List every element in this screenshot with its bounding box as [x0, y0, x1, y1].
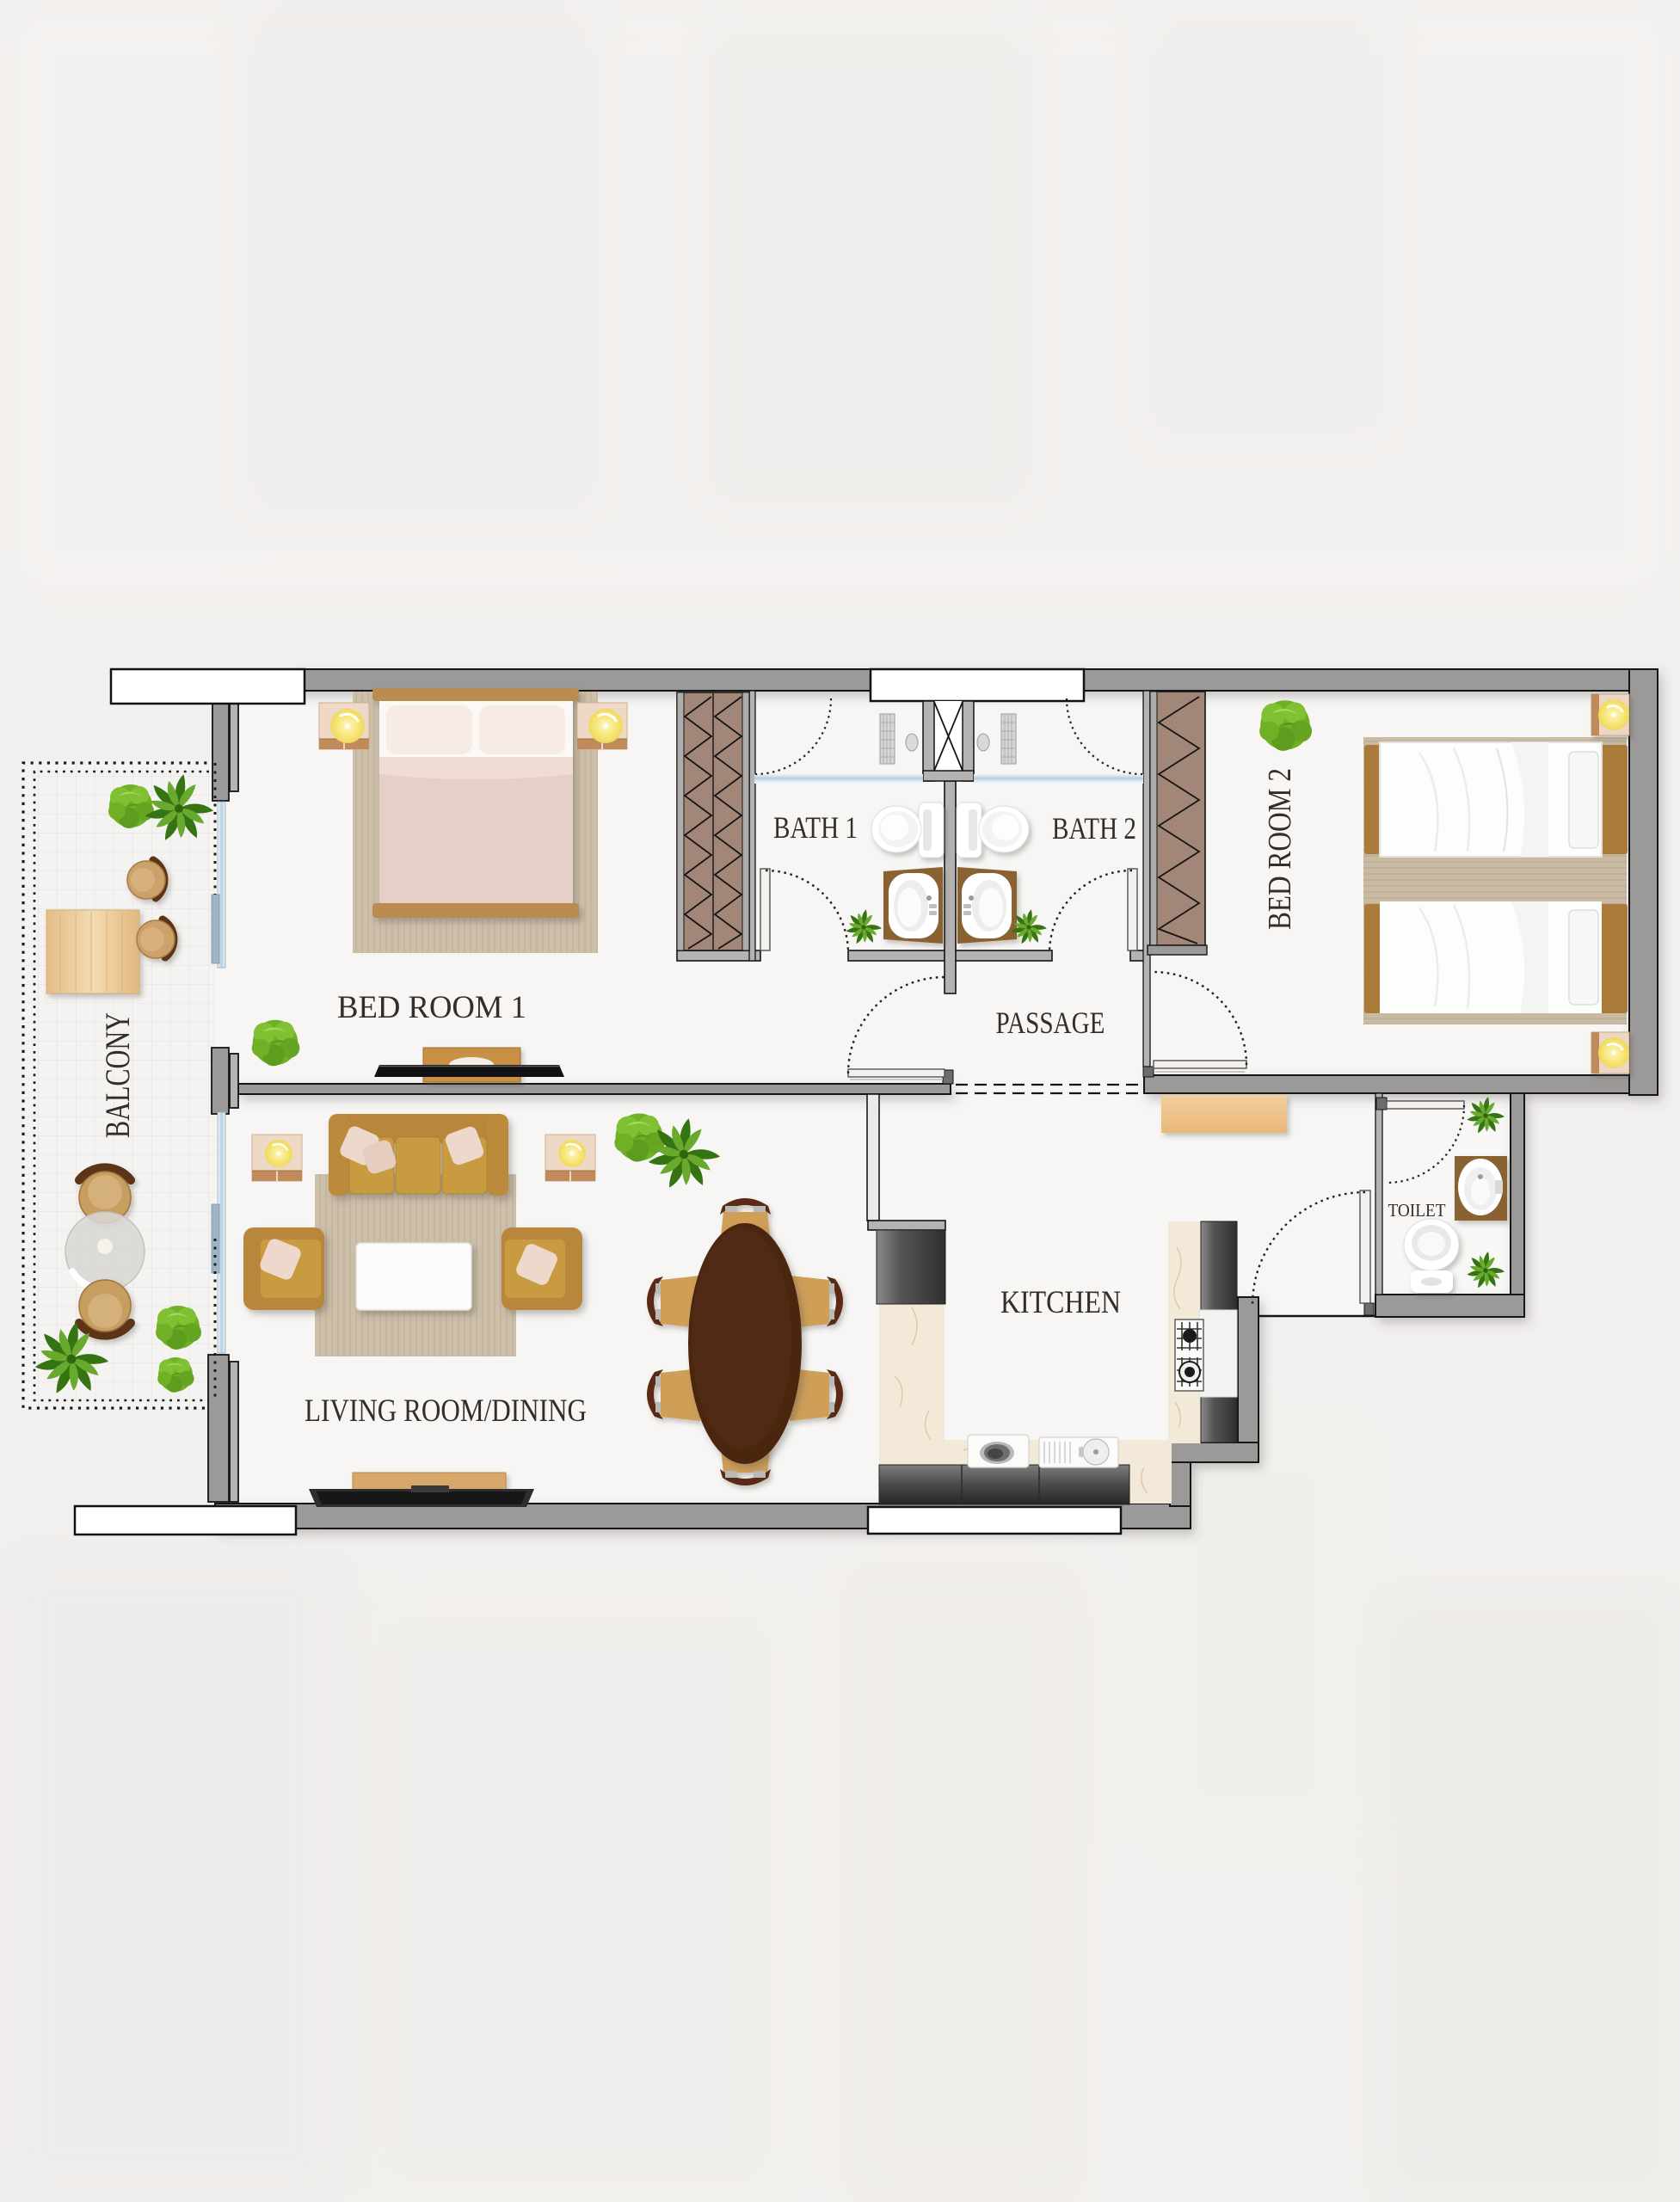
- svg-text:BED ROOM 2: BED ROOM 2: [1262, 768, 1298, 930]
- svg-text:TOILET: TOILET: [1388, 1200, 1446, 1221]
- svg-text:LIVING ROOM/DINING: LIVING ROOM/DINING: [305, 1393, 587, 1429]
- svg-text:PASSAGE: PASSAGE: [996, 1006, 1105, 1040]
- svg-text:BATH 1: BATH 1: [773, 810, 858, 845]
- svg-text:BALCONY: BALCONY: [98, 1012, 137, 1138]
- svg-text:BED ROOM 1: BED ROOM 1: [337, 990, 526, 1025]
- svg-text:BATH 2: BATH 2: [1052, 811, 1136, 846]
- svg-text:KITCHEN: KITCHEN: [1000, 1285, 1121, 1320]
